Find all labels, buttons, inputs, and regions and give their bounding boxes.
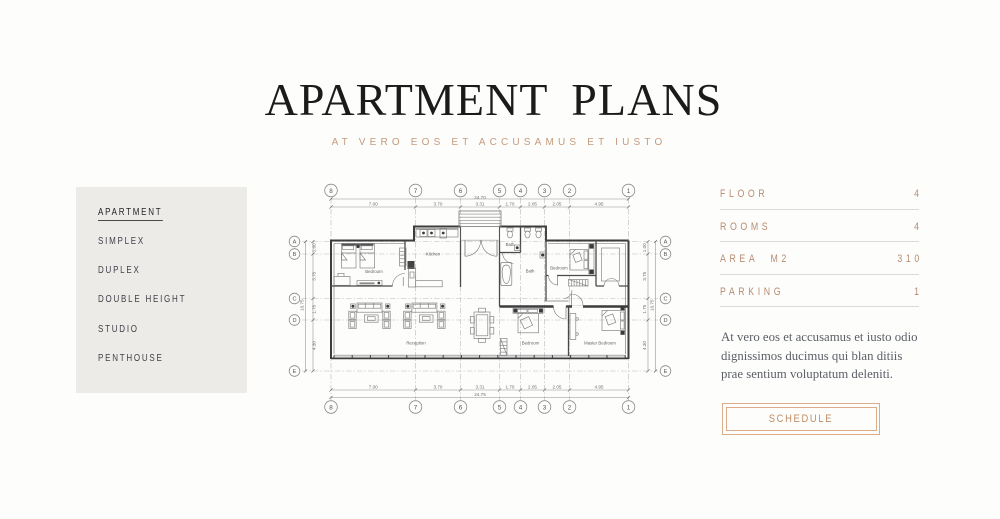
svg-text:3.70: 3.70 [434,385,443,390]
svg-text:Bath: Bath [506,242,515,247]
svg-text:3.75: 3.75 [311,271,316,280]
svg-text:Bedroom: Bedroom [522,341,540,346]
svg-text:3.75: 3.75 [642,271,647,280]
svg-text:1: 1 [627,404,631,411]
svg-text:2.05: 2.05 [528,385,537,390]
svg-text:1.00: 1.00 [311,243,316,252]
svg-text:4: 4 [519,404,523,411]
svg-text:3.31: 3.31 [476,385,485,390]
svg-text:2.05: 2.05 [553,202,562,207]
svg-text:2: 2 [568,404,572,411]
svg-text:3: 3 [543,188,547,195]
svg-text:24.75: 24.75 [474,392,486,397]
svg-text:5: 5 [498,404,502,411]
svg-text:Bedroom: Bedroom [365,269,383,274]
svg-text:4.95: 4.95 [595,202,604,207]
svg-text:Kitchen: Kitchen [426,252,441,257]
svg-text:E: E [293,369,297,375]
svg-text:24.70: 24.70 [474,195,486,200]
svg-text:4.30: 4.30 [311,341,316,350]
svg-text:B: B [293,252,297,258]
svg-text:A: A [664,240,668,246]
svg-text:Reception: Reception [406,341,426,346]
svg-text:Master Bedroom: Master Bedroom [584,341,616,346]
svg-text:C: C [292,297,296,303]
svg-text:1.70: 1.70 [506,202,515,207]
svg-text:4: 4 [519,188,523,195]
svg-text:2.05: 2.05 [528,202,537,207]
svg-text:B: B [664,252,668,258]
svg-text:E: E [664,369,668,375]
svg-text:D: D [663,318,667,324]
svg-text:7: 7 [414,404,418,411]
svg-text:3.70: 3.70 [434,202,443,207]
svg-text:2: 2 [568,188,572,195]
svg-text:10.75: 10.75 [300,299,305,311]
svg-text:8: 8 [329,188,333,195]
svg-text:10.75: 10.75 [650,299,655,311]
svg-text:1.00: 1.00 [642,243,647,252]
svg-text:1: 1 [627,188,631,195]
svg-text:6: 6 [459,404,463,411]
svg-text:A: A [293,240,297,246]
svg-text:6: 6 [459,188,463,195]
svg-text:1.75: 1.75 [642,304,647,313]
svg-text:3: 3 [543,404,547,411]
svg-text:7.00: 7.00 [369,202,378,207]
svg-text:3.31: 3.31 [476,202,485,207]
svg-text:4.95: 4.95 [595,385,604,390]
svg-text:7.00: 7.00 [369,385,378,390]
svg-text:C: C [663,297,667,303]
svg-text:1.70: 1.70 [506,385,515,390]
svg-text:2.05: 2.05 [553,385,562,390]
svg-text:1.75: 1.75 [311,304,316,313]
svg-text:Bath: Bath [526,269,535,274]
svg-text:7: 7 [414,188,418,195]
svg-text:Bedroom: Bedroom [550,266,568,271]
svg-text:D: D [292,318,296,324]
svg-text:8: 8 [329,404,333,411]
svg-text:5: 5 [498,188,502,195]
svg-text:4.30: 4.30 [642,341,647,350]
